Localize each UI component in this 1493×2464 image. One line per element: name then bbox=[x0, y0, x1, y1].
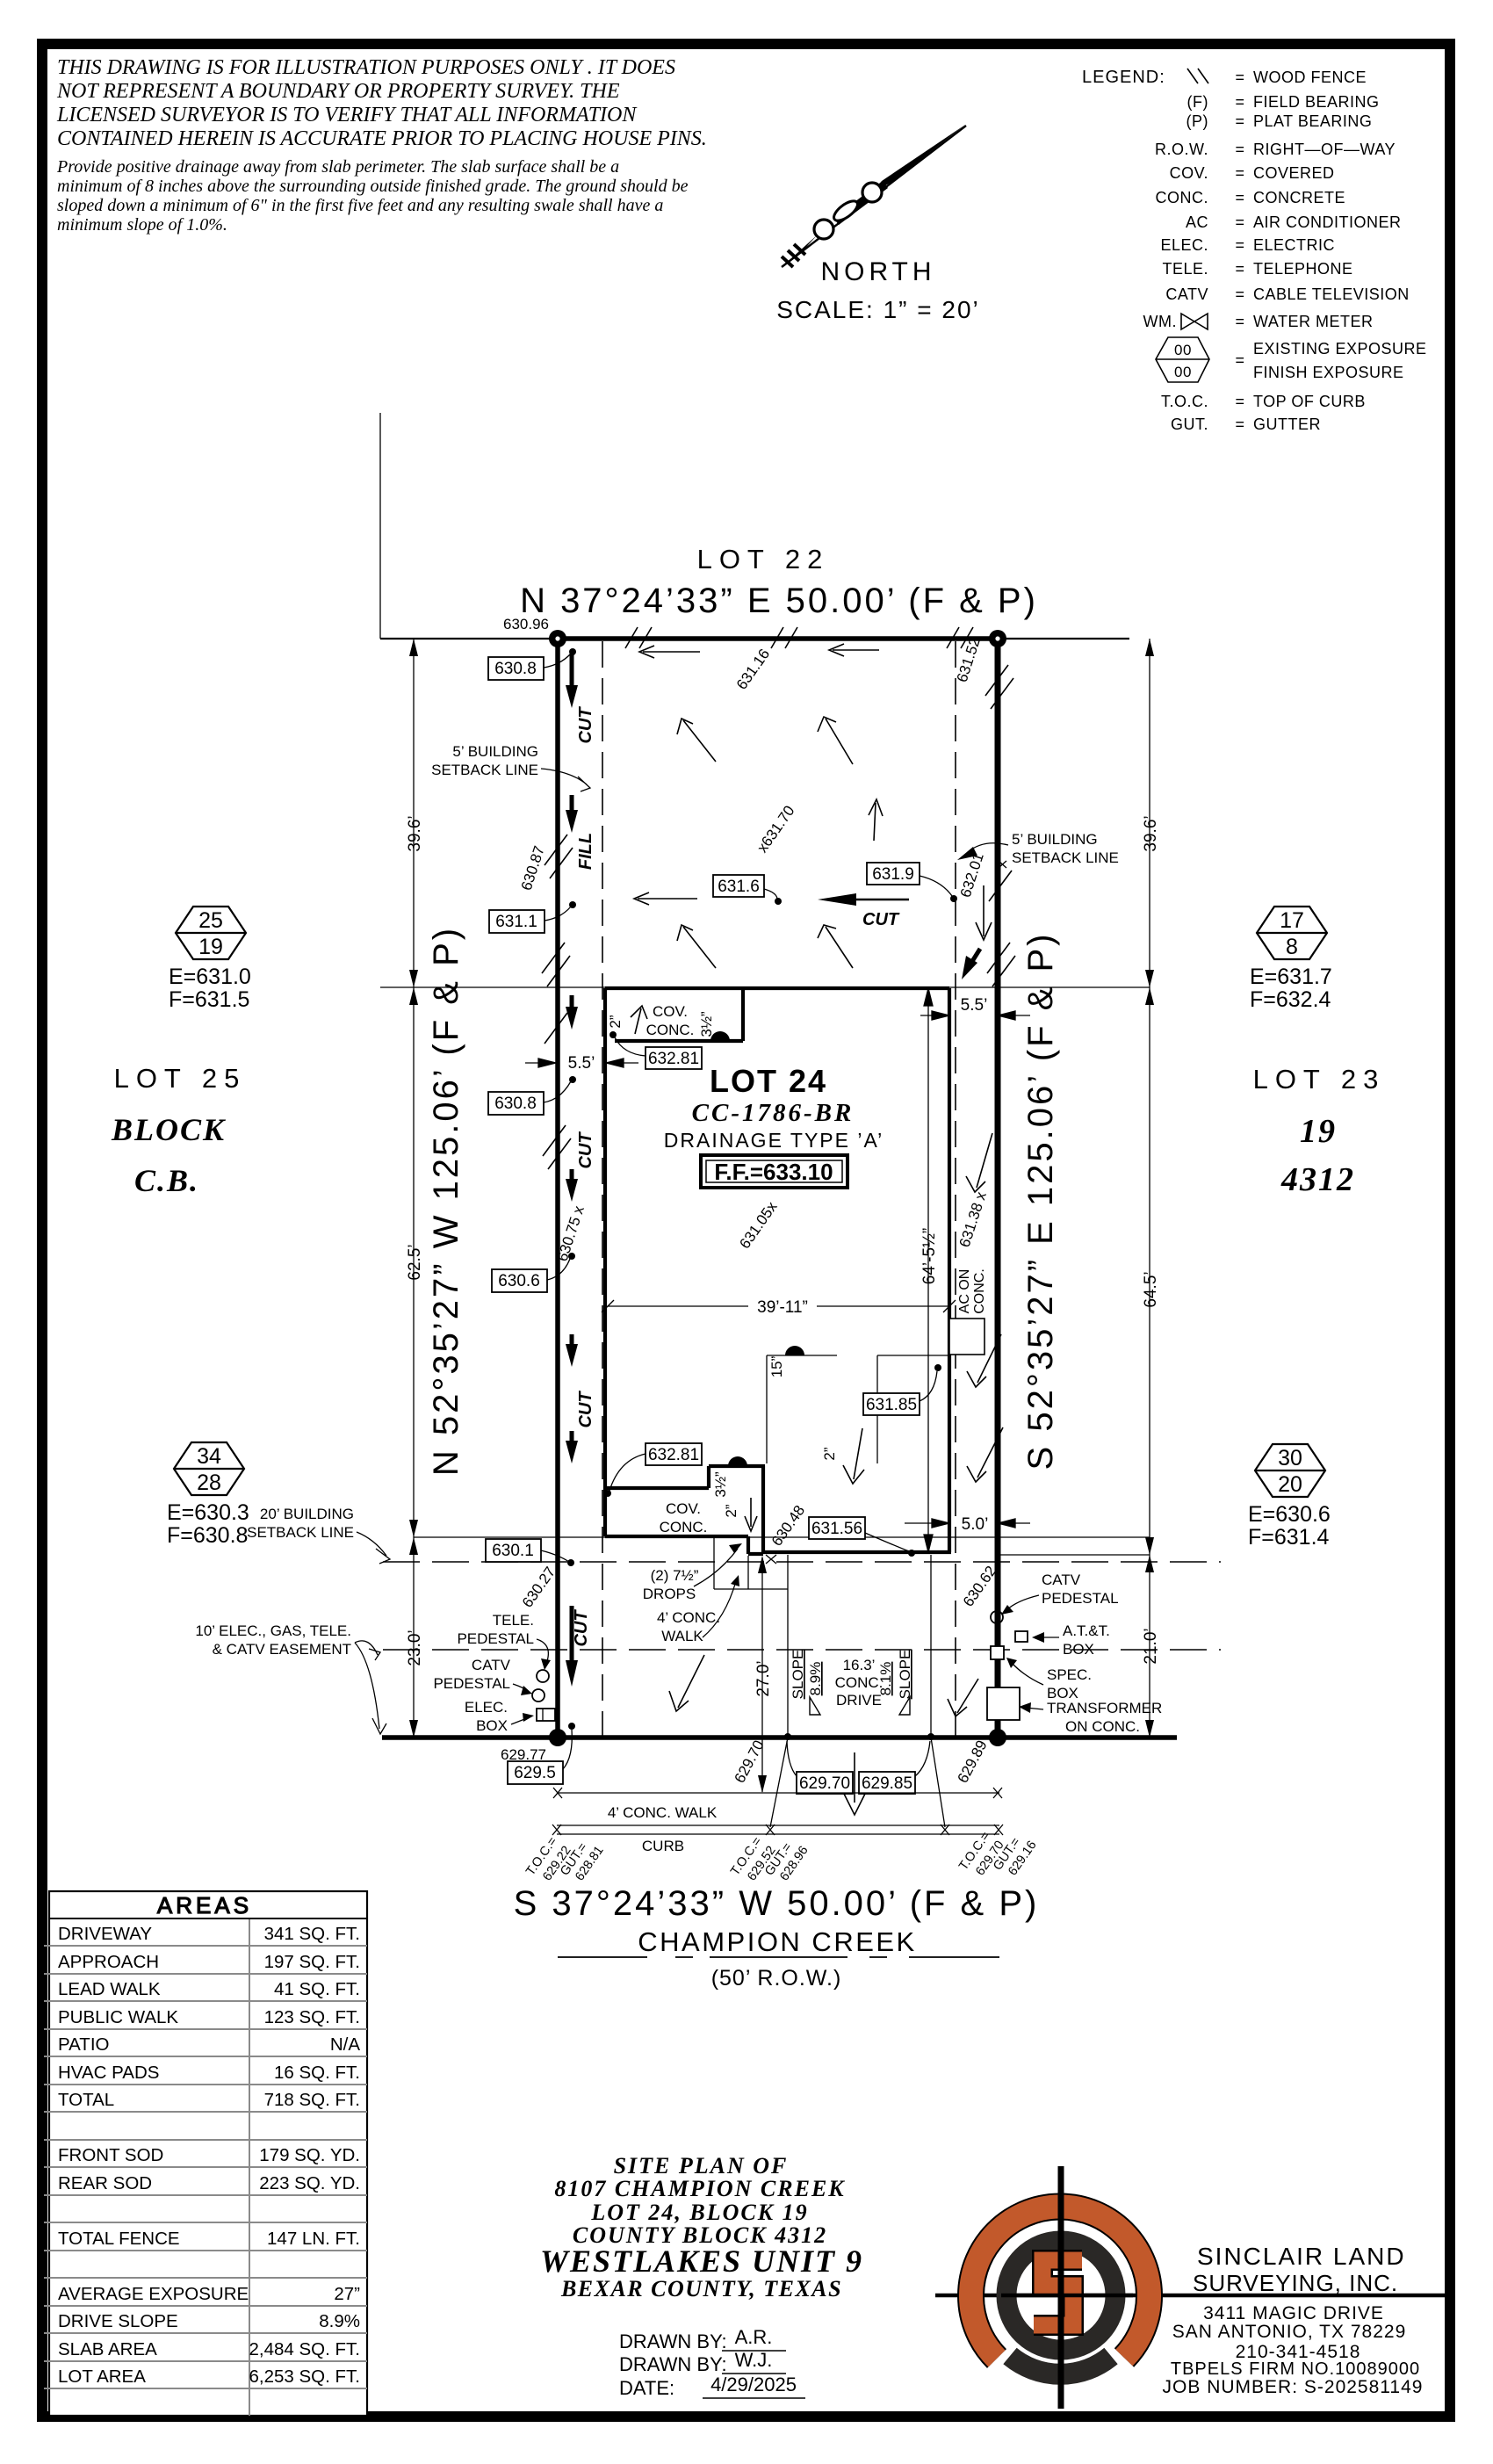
svg-text:HVAC PADS: HVAC PADS bbox=[58, 2063, 159, 2083]
svg-text:CUT: CUT bbox=[576, 706, 595, 744]
svg-text:64.5’: 64.5’ bbox=[1142, 1271, 1160, 1307]
svg-text:COVERED: COVERED bbox=[1253, 164, 1335, 182]
svg-text:631.56: 631.56 bbox=[811, 1520, 862, 1538]
svg-text:CONC.: CONC. bbox=[660, 1519, 708, 1535]
svg-text:=: = bbox=[1235, 213, 1244, 231]
svg-text:PATIO: PATIO bbox=[58, 2034, 109, 2055]
svg-text:F=631.5: F=631.5 bbox=[169, 987, 249, 1012]
svg-text:631.1: 631.1 bbox=[495, 913, 537, 931]
svg-text:E=630.6: E=630.6 bbox=[1248, 1502, 1331, 1527]
svg-text:ELECTRIC: ELECTRIC bbox=[1253, 236, 1335, 254]
svg-text:630.8: 630.8 bbox=[494, 1095, 537, 1113]
svg-text:WESTLAKES UNIT 9: WESTLAKES UNIT 9 bbox=[540, 2244, 863, 2279]
svg-text:CHAMPION CREEK: CHAMPION CREEK bbox=[638, 1926, 916, 1957]
svg-text:28: 28 bbox=[197, 1470, 221, 1495]
svg-text:E=631.7: E=631.7 bbox=[1250, 965, 1332, 989]
svg-text:AREAS: AREAS bbox=[157, 1892, 252, 1918]
svg-text:CUT: CUT bbox=[572, 1609, 591, 1647]
svg-text:=: = bbox=[1235, 415, 1244, 433]
svg-text:=: = bbox=[1235, 141, 1244, 158]
svg-text:S 37°24’33” W 50.00’ (F & P): S 37°24’33” W 50.00’ (F & P) bbox=[514, 1884, 1040, 1923]
svg-text:ON CONC.: ON CONC. bbox=[1065, 1718, 1140, 1735]
svg-text:=: = bbox=[1235, 164, 1244, 182]
svg-text:FINISH EXPOSURE: FINISH EXPOSURE bbox=[1253, 364, 1404, 381]
svg-text:BEXAR COUNTY, TEXAS: BEXAR COUNTY, TEXAS bbox=[560, 2276, 842, 2301]
svg-text:16 SQ. FT.: 16 SQ. FT. bbox=[274, 2063, 360, 2083]
svg-text:27”: 27” bbox=[334, 2284, 360, 2304]
svg-text:629.70: 629.70 bbox=[799, 1774, 850, 1793]
svg-text:=: = bbox=[1235, 93, 1244, 111]
svg-text:4’ CONC. WALK: 4’ CONC. WALK bbox=[608, 1804, 718, 1821]
svg-text:TOP OF CURB: TOP OF CURB bbox=[1253, 393, 1366, 410]
svg-text:CURB: CURB bbox=[642, 1838, 684, 1854]
svg-text:=: = bbox=[1235, 112, 1244, 130]
svg-text:25: 25 bbox=[198, 908, 223, 933]
svg-text:E=631.0: E=631.0 bbox=[169, 965, 251, 989]
svg-text:GUTTER: GUTTER bbox=[1253, 415, 1321, 433]
svg-text:CABLE TELEVISION: CABLE TELEVISION bbox=[1253, 285, 1410, 303]
svg-text:N/A: N/A bbox=[330, 2034, 361, 2055]
svg-text:630.6: 630.6 bbox=[498, 1272, 540, 1290]
svg-text:PEDESTAL: PEDESTAL bbox=[433, 1675, 510, 1692]
svg-text:WATER METER: WATER METER bbox=[1253, 313, 1374, 330]
svg-text:LEGEND:: LEGEND: bbox=[1082, 68, 1165, 87]
svg-text:23.0’: 23.0’ bbox=[406, 1629, 424, 1666]
svg-text:sloped down a minimum of 6" in: sloped down a minimum of 6" in the first… bbox=[57, 196, 663, 215]
svg-text:8.1%: 8.1% bbox=[877, 1662, 894, 1696]
svg-text:8: 8 bbox=[1286, 935, 1298, 959]
svg-text:629.5: 629.5 bbox=[514, 1764, 556, 1782]
svg-text:16.3’: 16.3’ bbox=[843, 1657, 876, 1673]
svg-text:A.T.&T.: A.T.&T. bbox=[1063, 1622, 1110, 1639]
svg-text:TELE.: TELE. bbox=[493, 1612, 534, 1629]
svg-text:2”: 2” bbox=[723, 1504, 739, 1517]
svg-text:BOX: BOX bbox=[476, 1717, 508, 1734]
svg-text:DRAWN BY:: DRAWN BY: bbox=[619, 2353, 727, 2375]
svg-text:BOX: BOX bbox=[1063, 1641, 1094, 1658]
svg-text:DRIVE SLOPE: DRIVE SLOPE bbox=[58, 2311, 178, 2331]
svg-text:4312: 4312 bbox=[1280, 1161, 1355, 1198]
svg-text:W.J.: W.J. bbox=[735, 2349, 773, 2371]
svg-text:CUT: CUT bbox=[862, 910, 900, 929]
svg-text:3½”: 3½” bbox=[712, 1471, 729, 1498]
svg-text:DRAWN BY:: DRAWN BY: bbox=[619, 2330, 727, 2352]
svg-text:CONC.: CONC. bbox=[646, 1022, 695, 1038]
svg-text:179 SQ. YD.: 179 SQ. YD. bbox=[259, 2145, 360, 2165]
svg-text:=: = bbox=[1235, 189, 1244, 206]
svg-text:AC ON: AC ON bbox=[957, 1269, 972, 1314]
svg-text:2”: 2” bbox=[821, 1447, 838, 1460]
svg-text:minimum slope of 1.0%.: minimum slope of 1.0%. bbox=[57, 215, 227, 235]
svg-text:3½”: 3½” bbox=[698, 1011, 715, 1037]
svg-text:630.96: 630.96 bbox=[503, 616, 549, 632]
svg-text:CATV: CATV bbox=[472, 1657, 511, 1673]
svg-text:FRONT SOD: FRONT SOD bbox=[58, 2145, 163, 2165]
svg-text:15”: 15” bbox=[768, 1355, 785, 1377]
svg-text:WALK: WALK bbox=[661, 1628, 703, 1644]
svg-text:17: 17 bbox=[1280, 908, 1304, 933]
svg-text:N 37°24’33” E 50.00’ (F & P): N 37°24’33” E 50.00’ (F & P) bbox=[520, 582, 1038, 620]
svg-text:CONCRETE: CONCRETE bbox=[1253, 189, 1345, 206]
svg-text:19: 19 bbox=[198, 935, 223, 959]
svg-text:34: 34 bbox=[197, 1444, 221, 1469]
svg-text:=: = bbox=[1235, 260, 1244, 278]
svg-text:COV.: COV. bbox=[1170, 164, 1208, 182]
svg-text:SLOPE: SLOPE bbox=[897, 1650, 913, 1700]
svg-text:5.0’: 5.0’ bbox=[962, 1515, 989, 1534]
svg-text:CONC.: CONC. bbox=[1156, 189, 1209, 206]
svg-text:SPEC.: SPEC. bbox=[1047, 1666, 1092, 1683]
svg-text:19: 19 bbox=[1300, 1113, 1337, 1150]
svg-text:ELEC.: ELEC. bbox=[1160, 236, 1208, 254]
svg-text:DRIVE: DRIVE bbox=[836, 1692, 882, 1709]
svg-text:COV.: COV. bbox=[653, 1003, 688, 1020]
svg-text:SURVEYING, INC.: SURVEYING, INC. bbox=[1193, 2270, 1398, 2296]
svg-text:AIR CONDITIONER: AIR CONDITIONER bbox=[1253, 213, 1402, 231]
svg-text:=: = bbox=[1235, 69, 1244, 86]
svg-text:Provide positive drainage away: Provide positive drainage away from slab… bbox=[56, 157, 619, 177]
svg-text:(2) 7½”: (2) 7½” bbox=[651, 1567, 699, 1584]
svg-text:(F): (F) bbox=[1187, 93, 1208, 111]
svg-text:TOTAL FENCE: TOTAL FENCE bbox=[58, 2229, 180, 2249]
svg-text:APPROACH: APPROACH bbox=[58, 1952, 159, 1972]
svg-text:5.5’: 5.5’ bbox=[568, 1054, 595, 1073]
svg-text:CATV: CATV bbox=[1165, 285, 1208, 303]
svg-text:41 SQ. FT.: 41 SQ. FT. bbox=[274, 1979, 360, 1999]
svg-text:COV.: COV. bbox=[666, 1500, 701, 1517]
svg-text:AC: AC bbox=[1186, 213, 1208, 231]
svg-text:27.0’: 27.0’ bbox=[754, 1660, 773, 1696]
svg-text:FIELD BEARING: FIELD BEARING bbox=[1253, 93, 1380, 111]
svg-text:30: 30 bbox=[1278, 1446, 1302, 1470]
svg-text:BLOCK: BLOCK bbox=[111, 1112, 227, 1147]
svg-text:147 LN. FT.: 147 LN. FT. bbox=[267, 2229, 360, 2249]
svg-text:39.6’: 39.6’ bbox=[406, 815, 424, 851]
svg-text:LICENSED SURVEYOR IS TO VERIFY: LICENSED SURVEYOR IS TO VERIFY THAT ALL … bbox=[56, 104, 638, 126]
svg-text:& CATV EASEMENT: & CATV EASEMENT bbox=[213, 1641, 351, 1658]
svg-text:8107 CHAMPION CREEK: 8107 CHAMPION CREEK bbox=[554, 2176, 845, 2201]
svg-text:GUT.: GUT. bbox=[1171, 415, 1208, 433]
svg-text:4’ CONC.: 4’ CONC. bbox=[657, 1609, 720, 1626]
svg-text:SLAB AREA: SLAB AREA bbox=[58, 2339, 157, 2359]
svg-text:CATV: CATV bbox=[1042, 1572, 1081, 1588]
svg-text:LOT 24: LOT 24 bbox=[710, 1063, 827, 1099]
svg-text:SINCLAIR LAND: SINCLAIR LAND bbox=[1197, 2243, 1406, 2270]
svg-text:20: 20 bbox=[1278, 1472, 1302, 1497]
svg-text:S 52°35’27” E 125.06’ (F & P): S 52°35’27” E 125.06’ (F & P) bbox=[1021, 932, 1060, 1470]
svg-text:SETBACK LINE: SETBACK LINE bbox=[1012, 849, 1119, 866]
svg-text:LOT AREA: LOT AREA bbox=[58, 2366, 146, 2387]
svg-text:3411 MAGIC DRIVE: 3411 MAGIC DRIVE bbox=[1203, 2303, 1384, 2323]
svg-text:DRAINAGE TYPE ’A’: DRAINAGE TYPE ’A’ bbox=[664, 1129, 884, 1152]
svg-text:LOT 24, BLOCK 19: LOT 24, BLOCK 19 bbox=[590, 2200, 808, 2225]
svg-text:DATE:: DATE: bbox=[619, 2377, 674, 2399]
svg-text:2”: 2” bbox=[607, 1015, 624, 1028]
svg-text:62.5’: 62.5’ bbox=[406, 1244, 424, 1280]
svg-text:=: = bbox=[1235, 313, 1244, 330]
svg-text:TBPELS FIRM NO.10089000: TBPELS FIRM NO.10089000 bbox=[1171, 2359, 1420, 2379]
svg-text:THIS DRAWING IS FOR ILLUSTRATI: THIS DRAWING IS FOR ILLUSTRATION PURPOSE… bbox=[57, 56, 675, 79]
svg-text:ELEC.: ELEC. bbox=[465, 1699, 508, 1716]
svg-text:(P): (P) bbox=[1186, 112, 1209, 130]
svg-text:RIGHT—OF—WAY: RIGHT—OF—WAY bbox=[1253, 141, 1396, 158]
svg-text:39.6’: 39.6’ bbox=[1142, 815, 1160, 851]
svg-text:631.9: 631.9 bbox=[872, 865, 914, 884]
svg-text:=: = bbox=[1235, 285, 1244, 303]
svg-text:DROPS: DROPS bbox=[643, 1586, 696, 1602]
svg-text:=: = bbox=[1235, 236, 1244, 254]
svg-text:5.5’: 5.5’ bbox=[961, 996, 988, 1015]
svg-text:631.6: 631.6 bbox=[718, 878, 760, 896]
svg-text:PLAT BEARING: PLAT BEARING bbox=[1253, 112, 1372, 130]
svg-text:123 SQ. FT.: 123 SQ. FT. bbox=[264, 2007, 360, 2027]
svg-text:CC-1786-BR: CC-1786-BR bbox=[692, 1099, 855, 1127]
svg-text:PEDESTAL: PEDESTAL bbox=[457, 1630, 534, 1647]
svg-text:=: = bbox=[1235, 351, 1244, 369]
svg-text:341 SQ. FT.: 341 SQ. FT. bbox=[264, 1924, 360, 1944]
svg-text:NOT REPRESENT A BOUNDARY OR PR: NOT REPRESENT A BOUNDARY OR PROPERTY SUR… bbox=[56, 80, 620, 103]
svg-text:SETBACK LINE: SETBACK LINE bbox=[431, 762, 538, 778]
svg-text:F=632.4: F=632.4 bbox=[1250, 987, 1331, 1012]
svg-text:8.9%: 8.9% bbox=[319, 2311, 360, 2331]
svg-text:718 SQ. FT.: 718 SQ. FT. bbox=[264, 2090, 360, 2110]
svg-text:SCALE: 1” = 20’: SCALE: 1” = 20’ bbox=[776, 296, 980, 323]
svg-text:SITE PLAN OF: SITE PLAN OF bbox=[614, 2153, 789, 2179]
svg-text:39’-11”: 39’-11” bbox=[757, 1298, 808, 1317]
svg-text:630.1: 630.1 bbox=[492, 1542, 534, 1560]
svg-text:AVERAGE EXPOSURE: AVERAGE EXPOSURE bbox=[58, 2284, 249, 2304]
svg-text:2,484 SQ. FT.: 2,484 SQ. FT. bbox=[249, 2339, 360, 2359]
svg-text:21.0’: 21.0’ bbox=[1142, 1628, 1160, 1664]
svg-text:(50’ R.O.W.): (50’ R.O.W.) bbox=[711, 1966, 842, 1991]
svg-text:EXISTING EXPOSURE: EXISTING EXPOSURE bbox=[1253, 340, 1427, 358]
svg-text:R.O.W.: R.O.W. bbox=[1155, 141, 1208, 158]
svg-text:5’ BUILDING: 5’ BUILDING bbox=[1012, 831, 1098, 848]
svg-text:T.O.C.: T.O.C. bbox=[1161, 393, 1208, 410]
svg-text:197 SQ. FT.: 197 SQ. FT. bbox=[264, 1952, 360, 1972]
svg-text:TELE.: TELE. bbox=[1162, 260, 1208, 278]
svg-text:631.85: 631.85 bbox=[866, 1396, 917, 1414]
svg-text:630.8: 630.8 bbox=[494, 660, 537, 678]
svg-text:REAR SOD: REAR SOD bbox=[58, 2173, 152, 2193]
svg-text:DRIVEWAY: DRIVEWAY bbox=[58, 1924, 152, 1944]
svg-text:SAN ANTONIO, TX 78229: SAN ANTONIO, TX 78229 bbox=[1172, 2322, 1407, 2342]
svg-text:629.85: 629.85 bbox=[862, 1774, 912, 1793]
svg-text:PEDESTAL: PEDESTAL bbox=[1042, 1590, 1119, 1607]
svg-text:TRANSFORMER: TRANSFORMER bbox=[1047, 1700, 1162, 1716]
svg-text:223 SQ. YD.: 223 SQ. YD. bbox=[259, 2173, 360, 2193]
svg-text:LOT 23: LOT 23 bbox=[1253, 1064, 1386, 1095]
svg-text:PUBLIC WALK: PUBLIC WALK bbox=[58, 2007, 178, 2027]
svg-text:10’ ELEC., GAS, TELE.: 10’ ELEC., GAS, TELE. bbox=[195, 1622, 351, 1639]
svg-text:FILL: FILL bbox=[576, 833, 595, 870]
svg-text:minimum of 8 inches above the: minimum of 8 inches above the surroundin… bbox=[57, 177, 689, 196]
svg-text:5’ BUILDING: 5’ BUILDING bbox=[452, 743, 538, 760]
svg-text:F=631.4: F=631.4 bbox=[1248, 1525, 1330, 1550]
svg-text:C.B.: C.B. bbox=[134, 1163, 199, 1198]
svg-text:20’ BUILDING: 20’ BUILDING bbox=[260, 1506, 354, 1522]
svg-text:8.9%: 8.9% bbox=[807, 1662, 824, 1696]
svg-text:CUT: CUT bbox=[576, 1131, 595, 1169]
svg-text:E=630.3: E=630.3 bbox=[167, 1500, 249, 1525]
svg-text:CONC.: CONC. bbox=[972, 1268, 987, 1314]
svg-text:JOB NUMBER: S-202581149: JOB NUMBER: S-202581149 bbox=[1163, 2377, 1424, 2397]
svg-text:=: = bbox=[1235, 393, 1244, 410]
svg-text:WM.: WM. bbox=[1143, 313, 1177, 330]
svg-text:A.R.: A.R. bbox=[735, 2326, 773, 2348]
svg-text:4/29/2025: 4/29/2025 bbox=[710, 2374, 797, 2395]
svg-text:CONC.: CONC. bbox=[835, 1674, 884, 1691]
svg-text:N 52°35’27” W 125.06’ (F & P): N 52°35’27” W 125.06’ (F & P) bbox=[427, 926, 465, 1476]
svg-text:CUT: CUT bbox=[576, 1391, 595, 1428]
svg-text:00: 00 bbox=[1174, 342, 1192, 358]
svg-text:CONTAINED HEREIN IS ACCURATE P: CONTAINED HEREIN IS ACCURATE PRIOR TO PL… bbox=[57, 127, 707, 150]
svg-text:00: 00 bbox=[1174, 364, 1192, 380]
svg-text:TELEPHONE: TELEPHONE bbox=[1253, 260, 1353, 278]
svg-text:SETBACK LINE: SETBACK LINE bbox=[247, 1524, 354, 1541]
svg-text:632.81: 632.81 bbox=[648, 1050, 699, 1068]
svg-text:632.81: 632.81 bbox=[648, 1446, 699, 1464]
svg-text:F.F.=633.10: F.F.=633.10 bbox=[714, 1159, 833, 1185]
svg-text:NORTH: NORTH bbox=[820, 257, 935, 286]
svg-text:TOTAL: TOTAL bbox=[58, 2090, 114, 2110]
svg-text:64’-5½”: 64’-5½” bbox=[920, 1228, 939, 1284]
svg-text:WOOD FENCE: WOOD FENCE bbox=[1253, 69, 1367, 86]
svg-text:LOT 22: LOT 22 bbox=[697, 544, 830, 574]
svg-text:6,253 SQ. FT.: 6,253 SQ. FT. bbox=[249, 2366, 360, 2387]
svg-text:LEAD WALK: LEAD WALK bbox=[58, 1979, 161, 1999]
svg-text:SLOPE: SLOPE bbox=[790, 1650, 806, 1700]
svg-text:F=630.8: F=630.8 bbox=[167, 1523, 248, 1548]
svg-text:LOT 25: LOT 25 bbox=[114, 1063, 247, 1094]
